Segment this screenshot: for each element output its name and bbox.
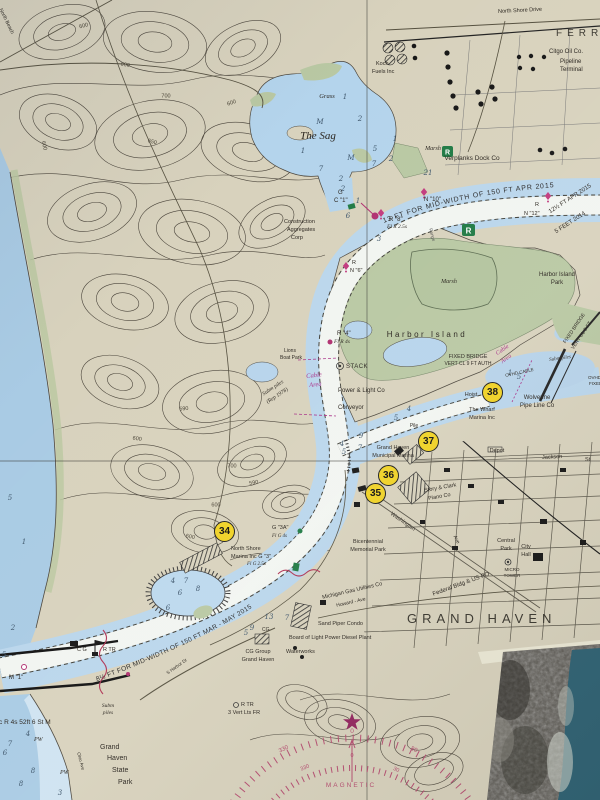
label-central-2: Park xyxy=(500,547,511,553)
contour-label: 700 xyxy=(161,94,170,100)
label-construction-3: Corp xyxy=(291,236,303,242)
contour-label: 600 xyxy=(39,141,47,151)
safe-water-buoy-m1 xyxy=(22,665,27,670)
label-g3a: G "3A" xyxy=(272,526,288,532)
label-jackson-st: St xyxy=(585,458,590,464)
label-n12: N "12" xyxy=(524,212,540,218)
compass-magnetic: MAGNETIC xyxy=(326,783,376,790)
label-cg-small: CG xyxy=(262,628,270,633)
label-koch: Koch xyxy=(376,62,389,68)
label-r8-chr: Fl R 2.5s xyxy=(387,225,407,231)
label-ovhd-e2: FIXED VERT xyxy=(589,382,600,387)
compass-inner-0: 0 xyxy=(350,754,353,760)
label-g3a-chr: Fl G 4s xyxy=(272,534,287,539)
sounding: 2 xyxy=(358,116,362,123)
label-lions-2: Boat Park xyxy=(280,356,302,361)
sounding: 5 xyxy=(2,652,6,659)
label-cityhall-1: City xyxy=(521,545,530,551)
sounding: 5 xyxy=(394,415,398,422)
sounding: 5 xyxy=(8,495,12,502)
sounding: 9 xyxy=(250,625,254,632)
label-cable-area-w2: Area xyxy=(309,382,322,390)
label-cg-group-2: Grand Haven xyxy=(242,658,275,664)
sounding: 5 xyxy=(373,146,377,153)
label-ns-marina-1: North Shore xyxy=(231,547,261,553)
sounding: 1 xyxy=(343,94,347,101)
label-micro-1: MICRO xyxy=(505,568,520,573)
label-r4: R "4" xyxy=(337,331,351,337)
label-rtr-2: R TR xyxy=(241,703,254,709)
label-cg-group-1: CG Group xyxy=(245,650,270,656)
label-harbor-island-park-1: Harbor Island xyxy=(539,272,575,278)
sounding: 7 xyxy=(285,615,289,622)
label-n10: N "10" xyxy=(424,197,441,203)
label-jackson: Jackson xyxy=(542,455,562,462)
label-the-sag: The Sag xyxy=(300,131,336,142)
label-citgo-3: Terminal xyxy=(560,67,583,73)
sounding: 2 xyxy=(339,176,343,183)
label-ovhd-e1: OVHD xyxy=(588,376,600,381)
sounding: 2 xyxy=(389,156,393,163)
chart-graphics: R R xyxy=(0,0,600,800)
label-state-park-3: State xyxy=(112,767,128,774)
label-rtr-1: R TR xyxy=(103,648,116,654)
nautical-chart-grand-haven: R R xyxy=(0,0,600,800)
sounding: 6 xyxy=(178,590,182,597)
label-grass: Grass xyxy=(319,94,335,101)
label-rn6-r: R xyxy=(352,261,356,267)
sounding: 4 xyxy=(26,731,30,738)
sounding: 7 xyxy=(358,445,362,452)
label-ferrysburg: FERR xyxy=(556,29,600,39)
sounding: M xyxy=(347,155,354,162)
sounding: 1 xyxy=(22,539,26,546)
label-citgo: Citgo Oil Co. xyxy=(549,49,583,55)
contour-label: 600 xyxy=(132,437,142,444)
sounding: 5 xyxy=(342,449,346,456)
label-koch-2: Fuels Inc xyxy=(372,70,394,76)
label-municipal-1: Grand Haven xyxy=(377,446,410,452)
sounding: 9 xyxy=(359,433,363,440)
label-pile: Pile xyxy=(410,424,418,429)
label-rn6: N "6" xyxy=(350,269,362,275)
label-sand-piper: Sand Piper Condo xyxy=(318,622,363,628)
contour-label: 700 xyxy=(227,464,236,470)
label-ns-marina-3: Fl G 2.5s xyxy=(247,562,266,567)
label-cityhall-2: Hall xyxy=(521,553,530,559)
sounding: 7 xyxy=(8,741,12,748)
label-construction-2: Aggregates xyxy=(287,228,315,234)
label-board-light: Board of Light Power Diesel Plant xyxy=(289,636,371,642)
sounding: 8 xyxy=(196,586,200,593)
label-oc-r: Oc R 4s 52ft 6 St M xyxy=(0,720,51,727)
label-cg-station: C G xyxy=(77,648,87,654)
sounding: 7 xyxy=(184,578,188,585)
label-fixed-bridge-1b: VERT CL 9 FT AUTH xyxy=(444,362,491,367)
label-stack: STACK xyxy=(346,364,368,370)
contour-label: 600 xyxy=(211,503,220,509)
label-hoist: Hoist xyxy=(465,393,478,399)
sounding: M xyxy=(316,119,323,126)
label-waterworks: Waterworks xyxy=(286,650,315,656)
label-pw-2: PW xyxy=(60,770,69,776)
label-central-1: Central xyxy=(497,539,515,545)
label-state-park-1: Grand xyxy=(100,744,119,751)
facility-marker-38: 38 xyxy=(482,382,503,403)
sounding: 8 xyxy=(19,781,23,788)
label-city-name: GRAND HAVEN xyxy=(407,612,556,625)
label-n12-r: R xyxy=(535,203,539,209)
label-marsh-north: Marsh xyxy=(425,146,441,152)
label-r8: R "8" xyxy=(389,217,403,223)
svg-text:R: R xyxy=(466,227,472,236)
label-subm-piles-s2: piles xyxy=(103,711,113,717)
label-lions-1: Lions xyxy=(284,349,296,354)
facility-marker-34: 34 xyxy=(214,521,235,542)
label-bicentennial-2: Memorial Park xyxy=(350,548,385,554)
label-municipal-2: Municipal Marina xyxy=(372,454,414,460)
sounding: 13 xyxy=(265,614,274,621)
sounding: 5 xyxy=(244,630,248,637)
label-wharf-1: The Wharf xyxy=(469,408,495,414)
contour-label: 590 xyxy=(179,407,189,413)
sounding: 4 xyxy=(407,406,411,413)
sounding: 1 xyxy=(393,136,397,143)
label-power-light: Power & Light Co xyxy=(338,388,385,394)
sounding: 7 xyxy=(372,161,376,168)
label-state-park-4: Park xyxy=(118,779,132,786)
label-wolverine-1: Wolverine xyxy=(524,395,551,401)
label-pw-1: PW xyxy=(34,737,43,743)
label-construction-1: Construction xyxy=(284,220,315,226)
lions-pond xyxy=(246,362,278,382)
label-micro-2: TOWER xyxy=(504,574,521,579)
sounding: 3 xyxy=(58,790,62,797)
label-vert-lts: 3 Vert Lts FR xyxy=(228,711,260,717)
label-ns-marina-2: Marina Inc G "3" xyxy=(231,555,271,561)
label-wolverine-2: Pipe Line Co xyxy=(520,403,554,409)
label-c1: C "1" xyxy=(334,198,348,204)
label-conveyor: Conveyor xyxy=(338,405,364,411)
facility-marker-36: 36 xyxy=(378,465,399,486)
sounding: 8 xyxy=(31,768,35,775)
label-bicentennial-1: Bicentennial xyxy=(353,540,383,546)
label-m1: M "1" xyxy=(9,675,23,681)
label-c1-g: G xyxy=(338,190,343,196)
sounding: 1 xyxy=(356,198,360,205)
label-harbor-island-park-2: Park xyxy=(551,280,563,286)
label-state-park-2: Haven xyxy=(107,755,127,762)
sounding: 4 xyxy=(171,578,175,585)
sounding: 6 xyxy=(166,605,170,612)
sounding: 3 xyxy=(377,236,381,243)
sounding: 1 xyxy=(301,148,305,155)
facility-marker-35: 35 xyxy=(365,483,386,504)
sounding: 4 xyxy=(340,441,344,448)
sounding: 6 xyxy=(346,213,350,220)
compass-outer-0: 0 xyxy=(350,729,354,736)
label-citgo-2: Pipeline xyxy=(560,59,581,65)
label-marsh-island: Marsh xyxy=(441,279,457,285)
sounding: 6 xyxy=(3,750,7,757)
label-verplanks: Verplanks Dock Co xyxy=(444,156,499,163)
label-harbor-island: Harbor Island xyxy=(387,331,468,339)
label-r4-chr: Fl R 4s xyxy=(334,340,350,346)
label-subm-piles-s1: Subm xyxy=(102,704,114,710)
sounding: 7 xyxy=(319,166,323,173)
facility-marker-37: 37 xyxy=(418,431,439,452)
label-fixed-bridge-1a: FIXED BRIDGE xyxy=(449,355,488,361)
sounding: 21 xyxy=(424,170,433,177)
pierhead-light xyxy=(126,672,130,676)
label-wharf-2: Marina Inc xyxy=(469,416,495,422)
sounding: 2 xyxy=(11,625,15,632)
label-depot: Depot xyxy=(490,449,505,455)
